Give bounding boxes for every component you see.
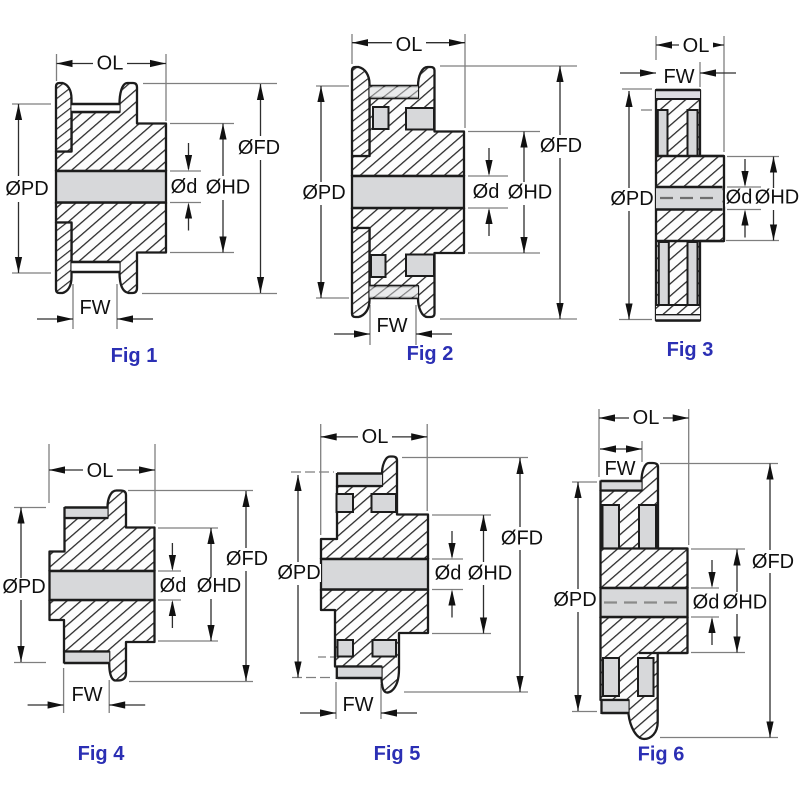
svg-text:ØFD: ØFD <box>501 528 543 550</box>
svg-text:ØPD: ØPD <box>610 188 653 210</box>
svg-text:ØFD: ØFD <box>238 137 280 159</box>
svg-text:FW: FW <box>342 694 373 716</box>
svg-text:OL: OL <box>97 53 124 75</box>
svg-text:Ød: Ød <box>171 176 198 198</box>
svg-text:Fig 3: Fig 3 <box>667 339 714 361</box>
svg-text:OL: OL <box>683 35 710 57</box>
svg-text:ØPD: ØPD <box>302 182 345 204</box>
svg-text:FW: FW <box>79 297 110 319</box>
svg-text:OL: OL <box>633 407 660 429</box>
svg-text:Fig 4: Fig 4 <box>78 743 126 765</box>
svg-text:ØPD: ØPD <box>5 178 48 200</box>
svg-text:Fig 2: Fig 2 <box>407 343 454 365</box>
svg-text:ØHD: ØHD <box>468 563 512 585</box>
svg-text:Ød: Ød <box>160 575 187 597</box>
svg-text:ØHD: ØHD <box>197 575 241 597</box>
svg-text:FW: FW <box>663 66 694 88</box>
svg-text:OL: OL <box>396 34 423 56</box>
svg-text:OL: OL <box>362 426 389 448</box>
svg-text:ØPD: ØPD <box>277 562 320 584</box>
svg-text:ØPD: ØPD <box>2 576 45 598</box>
svg-text:ØHD: ØHD <box>755 187 799 209</box>
svg-text:OL: OL <box>87 460 114 482</box>
svg-text:Fig 1: Fig 1 <box>111 345 158 367</box>
svg-text:Ød: Ød <box>435 563 462 585</box>
svg-text:ØHD: ØHD <box>723 592 767 614</box>
svg-text:ØFD: ØFD <box>540 135 582 157</box>
svg-text:FW: FW <box>71 684 102 706</box>
svg-text:FW: FW <box>604 458 635 480</box>
svg-text:Ød: Ød <box>726 187 753 209</box>
svg-text:FW: FW <box>376 315 407 337</box>
svg-text:ØPD: ØPD <box>553 589 596 611</box>
svg-text:ØHD: ØHD <box>206 177 250 199</box>
svg-text:ØFD: ØFD <box>752 551 794 573</box>
svg-text:Ød: Ød <box>693 592 720 614</box>
svg-text:Fig 5: Fig 5 <box>374 743 421 765</box>
svg-text:ØFD: ØFD <box>226 548 268 570</box>
svg-text:Fig 6: Fig 6 <box>638 744 685 766</box>
svg-text:Ød: Ød <box>473 181 500 203</box>
svg-text:ØHD: ØHD <box>508 182 552 204</box>
